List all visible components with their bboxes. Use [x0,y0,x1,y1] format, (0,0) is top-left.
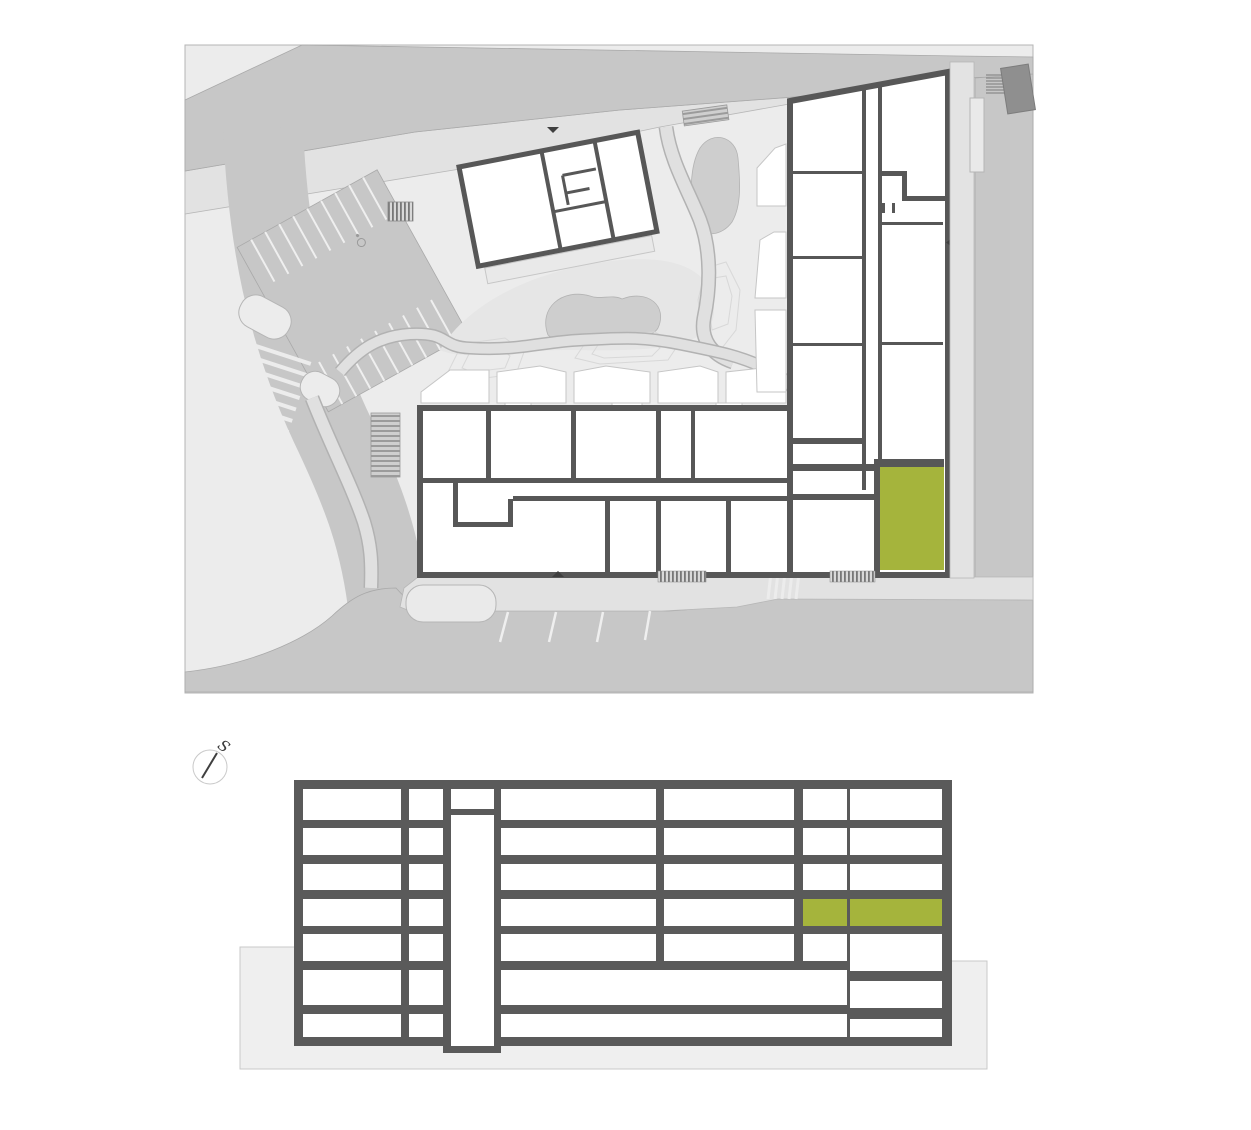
plan-unit-highlighted[interactable] [880,467,944,570]
section-unit-cell[interactable] [409,789,443,820]
section-unit-cell[interactable] [850,934,942,971]
section-unit-cell[interactable] [303,934,401,961]
section-unit-cell[interactable] [850,828,942,855]
section-unit-cell[interactable] [850,981,942,1008]
section-unit-cell[interactable] [803,828,847,855]
section-unit-cell[interactable] [303,864,401,890]
section-unit-cell[interactable] [501,899,656,926]
section-unit-cell[interactable] [803,864,847,890]
section-unit-cell[interactable] [501,828,656,855]
section-unit-cell[interactable] [409,899,443,926]
entrance-canopy [830,571,875,582]
page: S [0,0,1251,1130]
building-south-wing [420,408,795,575]
section-unit-cell[interactable] [409,864,443,890]
section-unit-cell[interactable] [664,899,794,926]
section-unit-cell[interactable] [501,789,656,820]
section-unit-cell[interactable] [803,789,847,820]
section-unit-cell[interactable] [803,934,847,961]
section-unit-cell[interactable] [409,934,443,961]
section-unit-cell[interactable] [409,828,443,855]
section-unit-cell[interactable] [850,864,942,890]
section-unit-cell[interactable] [664,934,794,961]
section-unit-cell[interactable] [409,1014,443,1037]
pergola [371,413,400,477]
site-plan [185,45,1035,693]
section-shaft-cells [451,789,494,1046]
terraces-row [421,366,786,408]
section-unit-cell[interactable] [664,789,794,820]
section-unit-cell[interactable] [303,789,401,820]
section-unit-cell[interactable] [303,828,401,855]
plan-unit-layer [880,467,944,570]
terraces-column [755,144,786,392]
section-unit-cell[interactable] [850,789,942,820]
section-unit-cell[interactable] [501,1014,847,1037]
section-unit-cell-highlighted[interactable] [803,899,847,926]
shelter [388,202,413,221]
compass: S [193,736,233,784]
retaining-wall [970,98,984,172]
section-unit-cell[interactable] [664,828,794,855]
entrance-canopy [658,571,706,582]
section-unit-cell-highlighted[interactable] [850,899,942,926]
section-unit-cell[interactable] [664,864,794,890]
section-unit-cell[interactable] [409,970,443,1005]
section-shaft-cell [451,789,494,809]
section-unit-cell[interactable] [501,864,656,890]
section-unit-cell[interactable] [303,899,401,926]
section-unit-cell[interactable] [303,970,401,1005]
section-shaft-cell [451,815,494,1046]
section-unit-cell[interactable] [501,970,847,1005]
section-unit-cell[interactable] [303,1014,401,1037]
section-diagram [240,780,987,1069]
building-east-wing [790,72,952,575]
section-unit-cell[interactable] [850,1019,942,1037]
green-island [406,585,496,622]
section-unit-cell[interactable] [501,934,656,961]
